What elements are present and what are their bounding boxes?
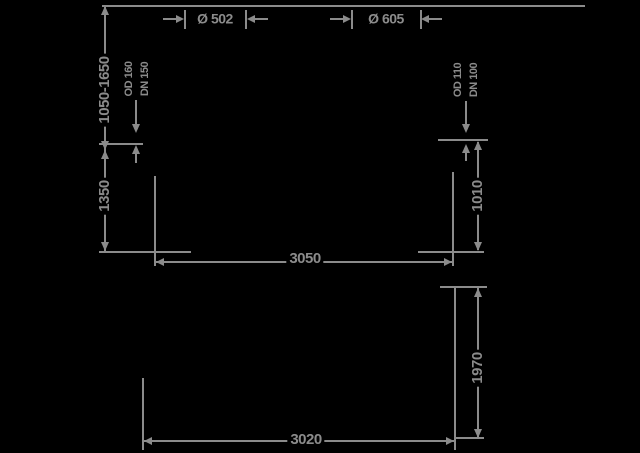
arrowhead-down-icon [132,124,140,133]
shaft-right-tick [351,10,353,29]
plan-bottom-extension-line-right [454,437,484,439]
arrowhead-down-icon [101,242,109,251]
ground-line [102,5,585,7]
shaft-left-tick [184,10,186,29]
outlet-height-label: 1010 [470,177,486,214]
shaft-left-diameter-label: Ø 502 [194,12,236,27]
arrowhead-right-icon [343,15,351,23]
inlet-pipe-label: OD 160 DN 150 [121,62,153,97]
technical-drawing-canvas: 1050-1650 1350 OD 160 DN 150 Ø 502 Ø 605… [0,0,640,453]
arrowhead-right-icon [444,258,452,266]
arrowhead-down-icon [474,242,482,251]
plan-right-extension-line [454,287,456,450]
inlet-leader-line [135,100,137,125]
adjustable-depth-label: 1050-1650 [97,53,113,126]
bottom-extension-line-left [99,251,191,253]
arrowhead-left-icon [144,437,152,445]
tank-right-extension-line [452,172,454,266]
plan-length-label: 3020 [287,432,324,448]
inlet-dn-label: DN 150 [137,62,153,97]
arrowhead-up-icon [474,141,482,150]
shaft-right-dim-stem [330,18,344,20]
outlet-od-label: OD 110 [450,63,466,97]
plan-width-label: 1970 [470,349,486,386]
outlet-leader-line [465,101,467,125]
inlet-depth-label: 1350 [97,177,113,214]
shaft-left-dim-stem [163,18,177,20]
arrowhead-right-icon [446,437,454,445]
outlet-pipe-label: OD 110 DN 100 [450,63,482,97]
inlet-od-label: OD 160 [121,62,137,97]
shaft-left-dim-stem [254,18,268,20]
bottom-extension-line-right [418,251,484,253]
arrowhead-right-icon [176,15,184,23]
arrowhead-up-icon [101,6,109,15]
arrowhead-up-icon [474,288,482,297]
shaft-right-diameter-label: Ø 605 [365,12,407,27]
inlet-invert-leader-line [135,153,137,163]
outlet-dn-label: DN 100 [466,63,482,97]
tank-left-extension-line [154,176,156,266]
arrowhead-up-icon [101,150,109,159]
shaft-right-dim-stem [428,18,442,20]
overall-length-label: 3050 [286,251,323,267]
outlet-invert-leader-line [465,152,467,161]
arrowhead-left-icon [156,258,164,266]
arrowhead-down-icon [462,124,470,133]
